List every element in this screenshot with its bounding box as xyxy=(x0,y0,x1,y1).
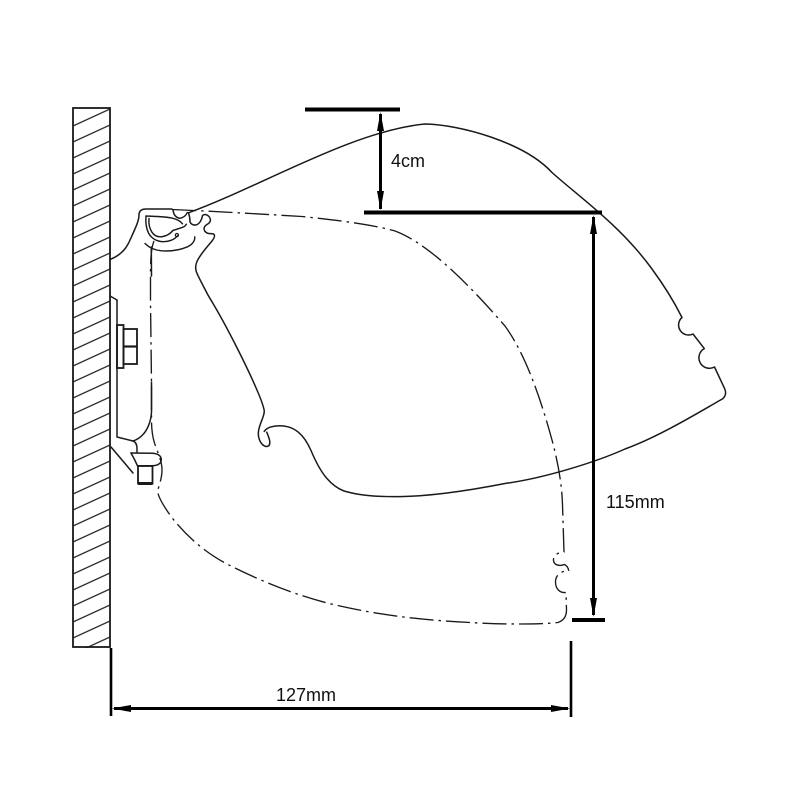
svg-text:4cm: 4cm xyxy=(391,151,425,171)
svg-text:127mm: 127mm xyxy=(276,685,336,705)
svg-text:115mm: 115mm xyxy=(606,492,665,512)
